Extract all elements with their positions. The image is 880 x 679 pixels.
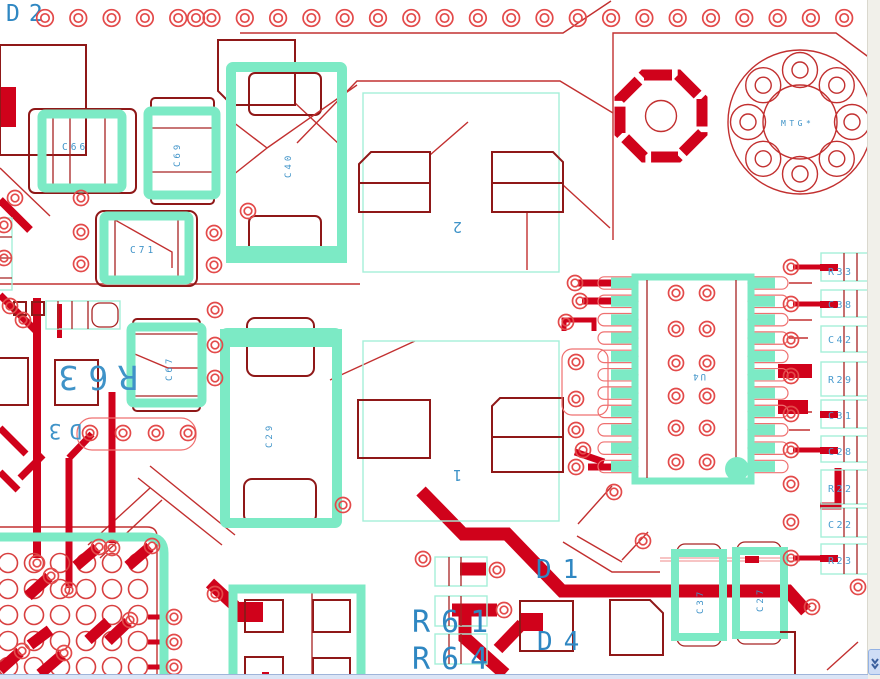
component-d3[interactable]: D3 <box>41 418 196 450</box>
refdes-c67: C67 <box>165 356 175 381</box>
pcb-artwork[interactable]: C66 C69 C40 C71 C67 C29 <box>0 0 880 679</box>
chevron-down-icon <box>869 650 880 674</box>
via-top-row <box>403 10 420 27</box>
refdes-c66: C66 <box>62 142 88 153</box>
mtg-hole <box>819 141 854 176</box>
via-top-row <box>503 10 520 27</box>
refdes-d4: D4 <box>537 627 590 657</box>
refdes-r64: R64 <box>412 642 499 677</box>
refdes-c31: C31 <box>828 411 854 422</box>
via <box>116 426 131 441</box>
refdes-d1: D1 <box>536 555 589 585</box>
via <box>700 356 715 371</box>
mtg-hole <box>819 68 854 103</box>
via-top-row <box>736 10 753 27</box>
via-top-row <box>536 10 553 27</box>
via <box>700 421 715 436</box>
mtg-hole <box>731 105 766 140</box>
mounting-hole-mtg[interactable]: MTG* <box>728 50 872 194</box>
octagon-ring <box>620 75 702 157</box>
via <box>149 426 164 441</box>
via <box>167 635 182 650</box>
grid-pad <box>51 606 70 625</box>
via-top-row <box>188 10 205 27</box>
via-top-row <box>370 10 387 27</box>
via-top-row <box>103 10 120 27</box>
refdes-r23: R23 <box>828 556 854 567</box>
refdes-c27: C27 <box>756 587 766 612</box>
via <box>669 322 684 337</box>
refdes-c38: C38 <box>828 300 854 311</box>
via <box>700 455 715 470</box>
via-top-row <box>203 10 220 27</box>
via <box>607 485 622 500</box>
component-c67[interactable]: C67 <box>131 319 202 411</box>
via <box>0 218 12 233</box>
mtg-hole <box>783 157 818 192</box>
pcb-editor-canvas[interactable]: C66 C69 C40 C71 C67 C29 <box>0 0 880 679</box>
refdes-r61: R61 <box>412 605 499 640</box>
via <box>569 423 584 438</box>
grid-pad <box>129 580 148 599</box>
via <box>700 389 715 404</box>
via-top-row <box>836 10 853 27</box>
refdes-r33: R33 <box>828 267 854 278</box>
via-top-row <box>669 10 686 27</box>
component-c71[interactable]: C71 <box>96 211 197 286</box>
component-c40[interactable]: C40 <box>226 67 357 263</box>
via <box>416 552 431 567</box>
via-top-row <box>603 10 620 27</box>
via-top-row <box>137 10 154 27</box>
via-top-row <box>769 10 786 27</box>
via <box>569 392 584 407</box>
via-top-row <box>703 10 720 27</box>
octagon-pad[interactable] <box>620 75 702 157</box>
via-top-row <box>170 10 187 27</box>
via-top-row <box>70 10 87 27</box>
via <box>784 477 799 492</box>
mtg-hole <box>746 68 781 103</box>
via <box>669 356 684 371</box>
grid-pad <box>77 606 96 625</box>
component-c66[interactable]: C66 <box>29 109 136 193</box>
via-top-row <box>803 10 820 27</box>
refdes-c40: C40 <box>284 153 294 178</box>
u4-pin1-marker <box>725 457 749 481</box>
via <box>207 226 222 241</box>
grid-pad <box>77 580 96 599</box>
refdes-c42: C42 <box>828 335 854 346</box>
refdes-mtg: MTG* <box>781 119 814 128</box>
via-top-row <box>336 10 353 27</box>
via <box>784 333 799 348</box>
refdes-r63: R63 <box>48 358 138 397</box>
mtg-hole <box>835 105 870 140</box>
via <box>700 322 715 337</box>
via <box>167 660 182 675</box>
via <box>74 225 89 240</box>
via-top-row <box>303 10 320 27</box>
component-c69[interactable]: C69 <box>148 98 216 204</box>
via <box>700 286 715 301</box>
component-c29[interactable]: C29 <box>220 318 342 523</box>
pin-number-2: 2 <box>453 218 462 236</box>
grid-pad <box>103 580 122 599</box>
via <box>636 534 651 549</box>
refdes-c71: C71 <box>130 245 156 256</box>
component-pin2-footprint[interactable]: 2 <box>359 93 563 272</box>
refdes-c69: C69 <box>173 142 183 167</box>
via <box>490 563 505 578</box>
via-top-row <box>237 10 254 27</box>
via <box>569 460 584 475</box>
refdes-c37: C37 <box>696 589 706 614</box>
via <box>669 421 684 436</box>
via <box>8 191 23 206</box>
via <box>181 426 196 441</box>
grid-pad <box>0 606 18 625</box>
via <box>669 286 684 301</box>
grid-pad <box>129 632 148 651</box>
refdes-r22: R22 <box>828 484 854 495</box>
scroll-down-button[interactable] <box>868 649 880 675</box>
refdes-c22: C22 <box>828 520 854 531</box>
grid-pad <box>25 606 44 625</box>
via <box>669 455 684 470</box>
component-u4[interactable]: U4 <box>598 277 788 481</box>
via <box>851 580 866 595</box>
refdes-d3: D3 <box>41 419 82 443</box>
via <box>569 355 584 370</box>
via <box>74 257 89 272</box>
component-r63[interactable]: R63 <box>0 358 138 405</box>
highlight-outline <box>225 333 337 523</box>
bottom-right-pads <box>780 632 795 679</box>
via <box>167 610 182 625</box>
via <box>669 389 684 404</box>
refdes-r29: R29 <box>828 375 854 386</box>
via-top-row <box>636 10 653 27</box>
vertical-scrollbar[interactable] <box>867 0 880 679</box>
grid-jumper <box>76 548 97 566</box>
mtg-hole <box>783 53 818 88</box>
via-top-row <box>436 10 453 27</box>
pin-number-1: 1 <box>453 466 462 484</box>
via <box>241 204 256 219</box>
via <box>784 515 799 530</box>
horizontal-scrollbar[interactable] <box>0 674 868 679</box>
via-top-row <box>470 10 487 27</box>
grid-pad <box>0 580 18 599</box>
refdes-c29: C29 <box>265 423 275 448</box>
grid-pad <box>0 554 18 573</box>
component-pin1-footprint[interactable]: 1 <box>358 341 563 521</box>
refdes-u4: U4 <box>691 371 706 381</box>
via <box>208 303 223 318</box>
via-top-row <box>270 10 287 27</box>
via <box>207 258 222 273</box>
mtg-hole <box>746 141 781 176</box>
refdes-c28: C28 <box>828 447 854 458</box>
